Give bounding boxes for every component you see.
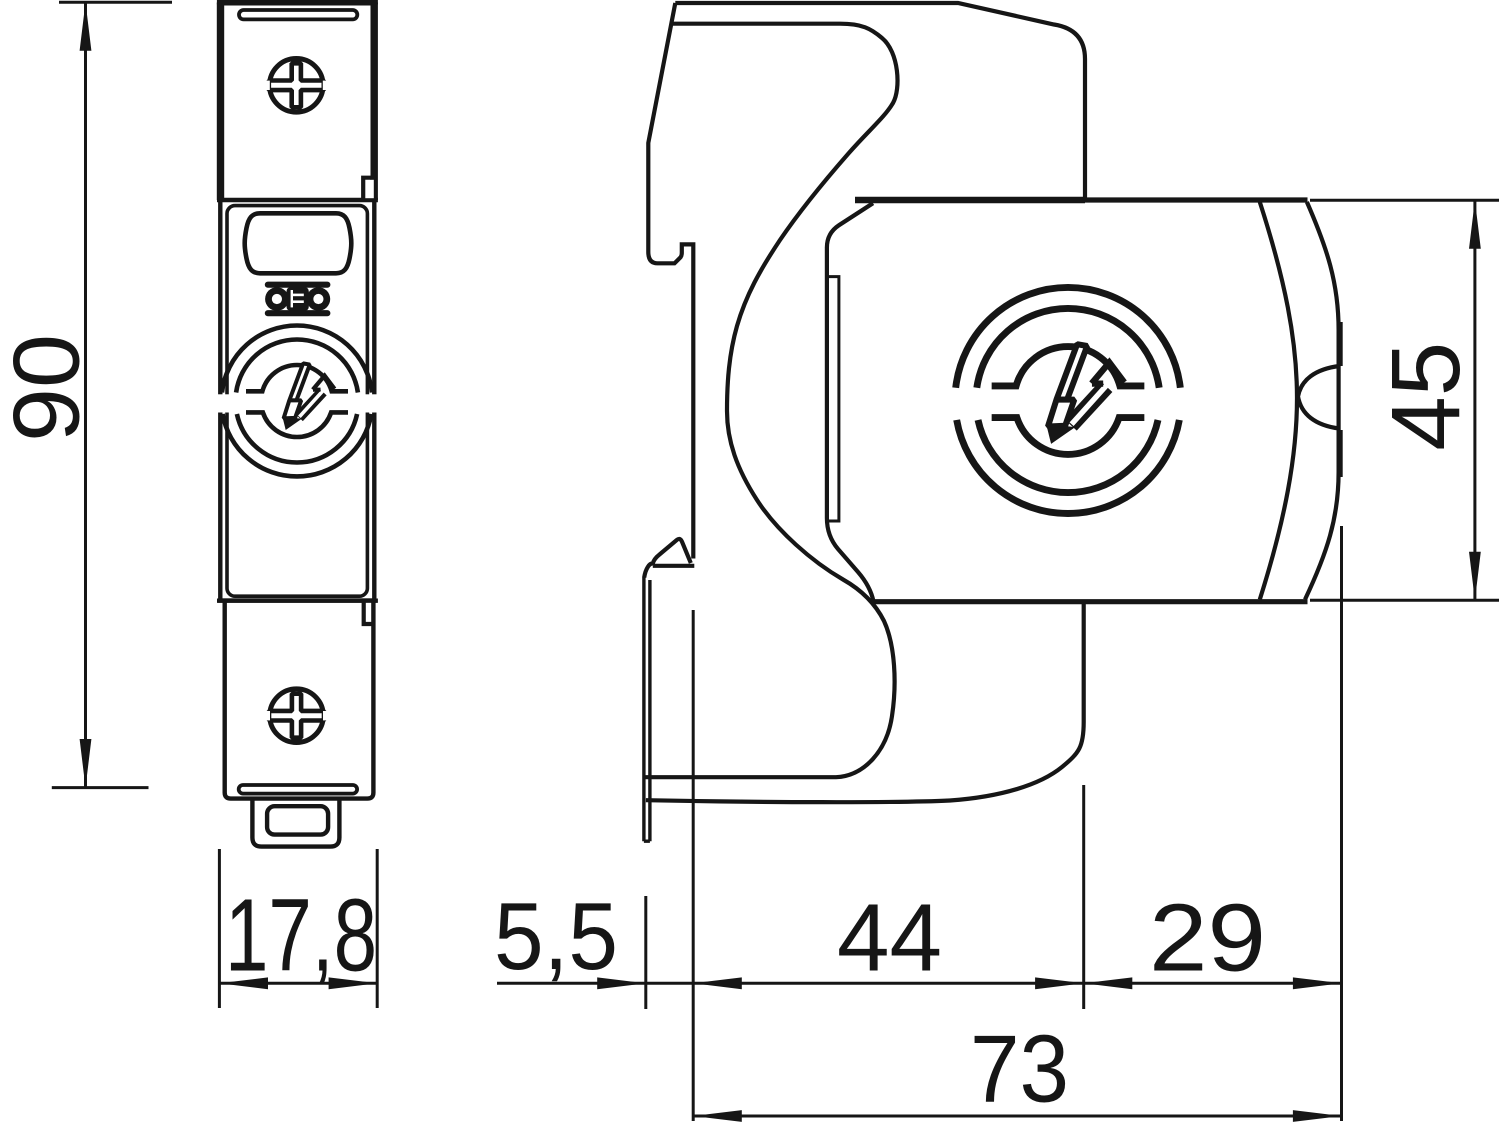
svg-text:5,5: 5,5: [494, 883, 618, 990]
svg-text:90: 90: [0, 334, 99, 442]
svg-text:29: 29: [1149, 885, 1266, 992]
svg-text:45: 45: [1371, 342, 1480, 451]
svg-text:44: 44: [837, 885, 942, 992]
svg-text:17,8: 17,8: [225, 878, 377, 993]
svg-text:73: 73: [970, 1016, 1069, 1123]
